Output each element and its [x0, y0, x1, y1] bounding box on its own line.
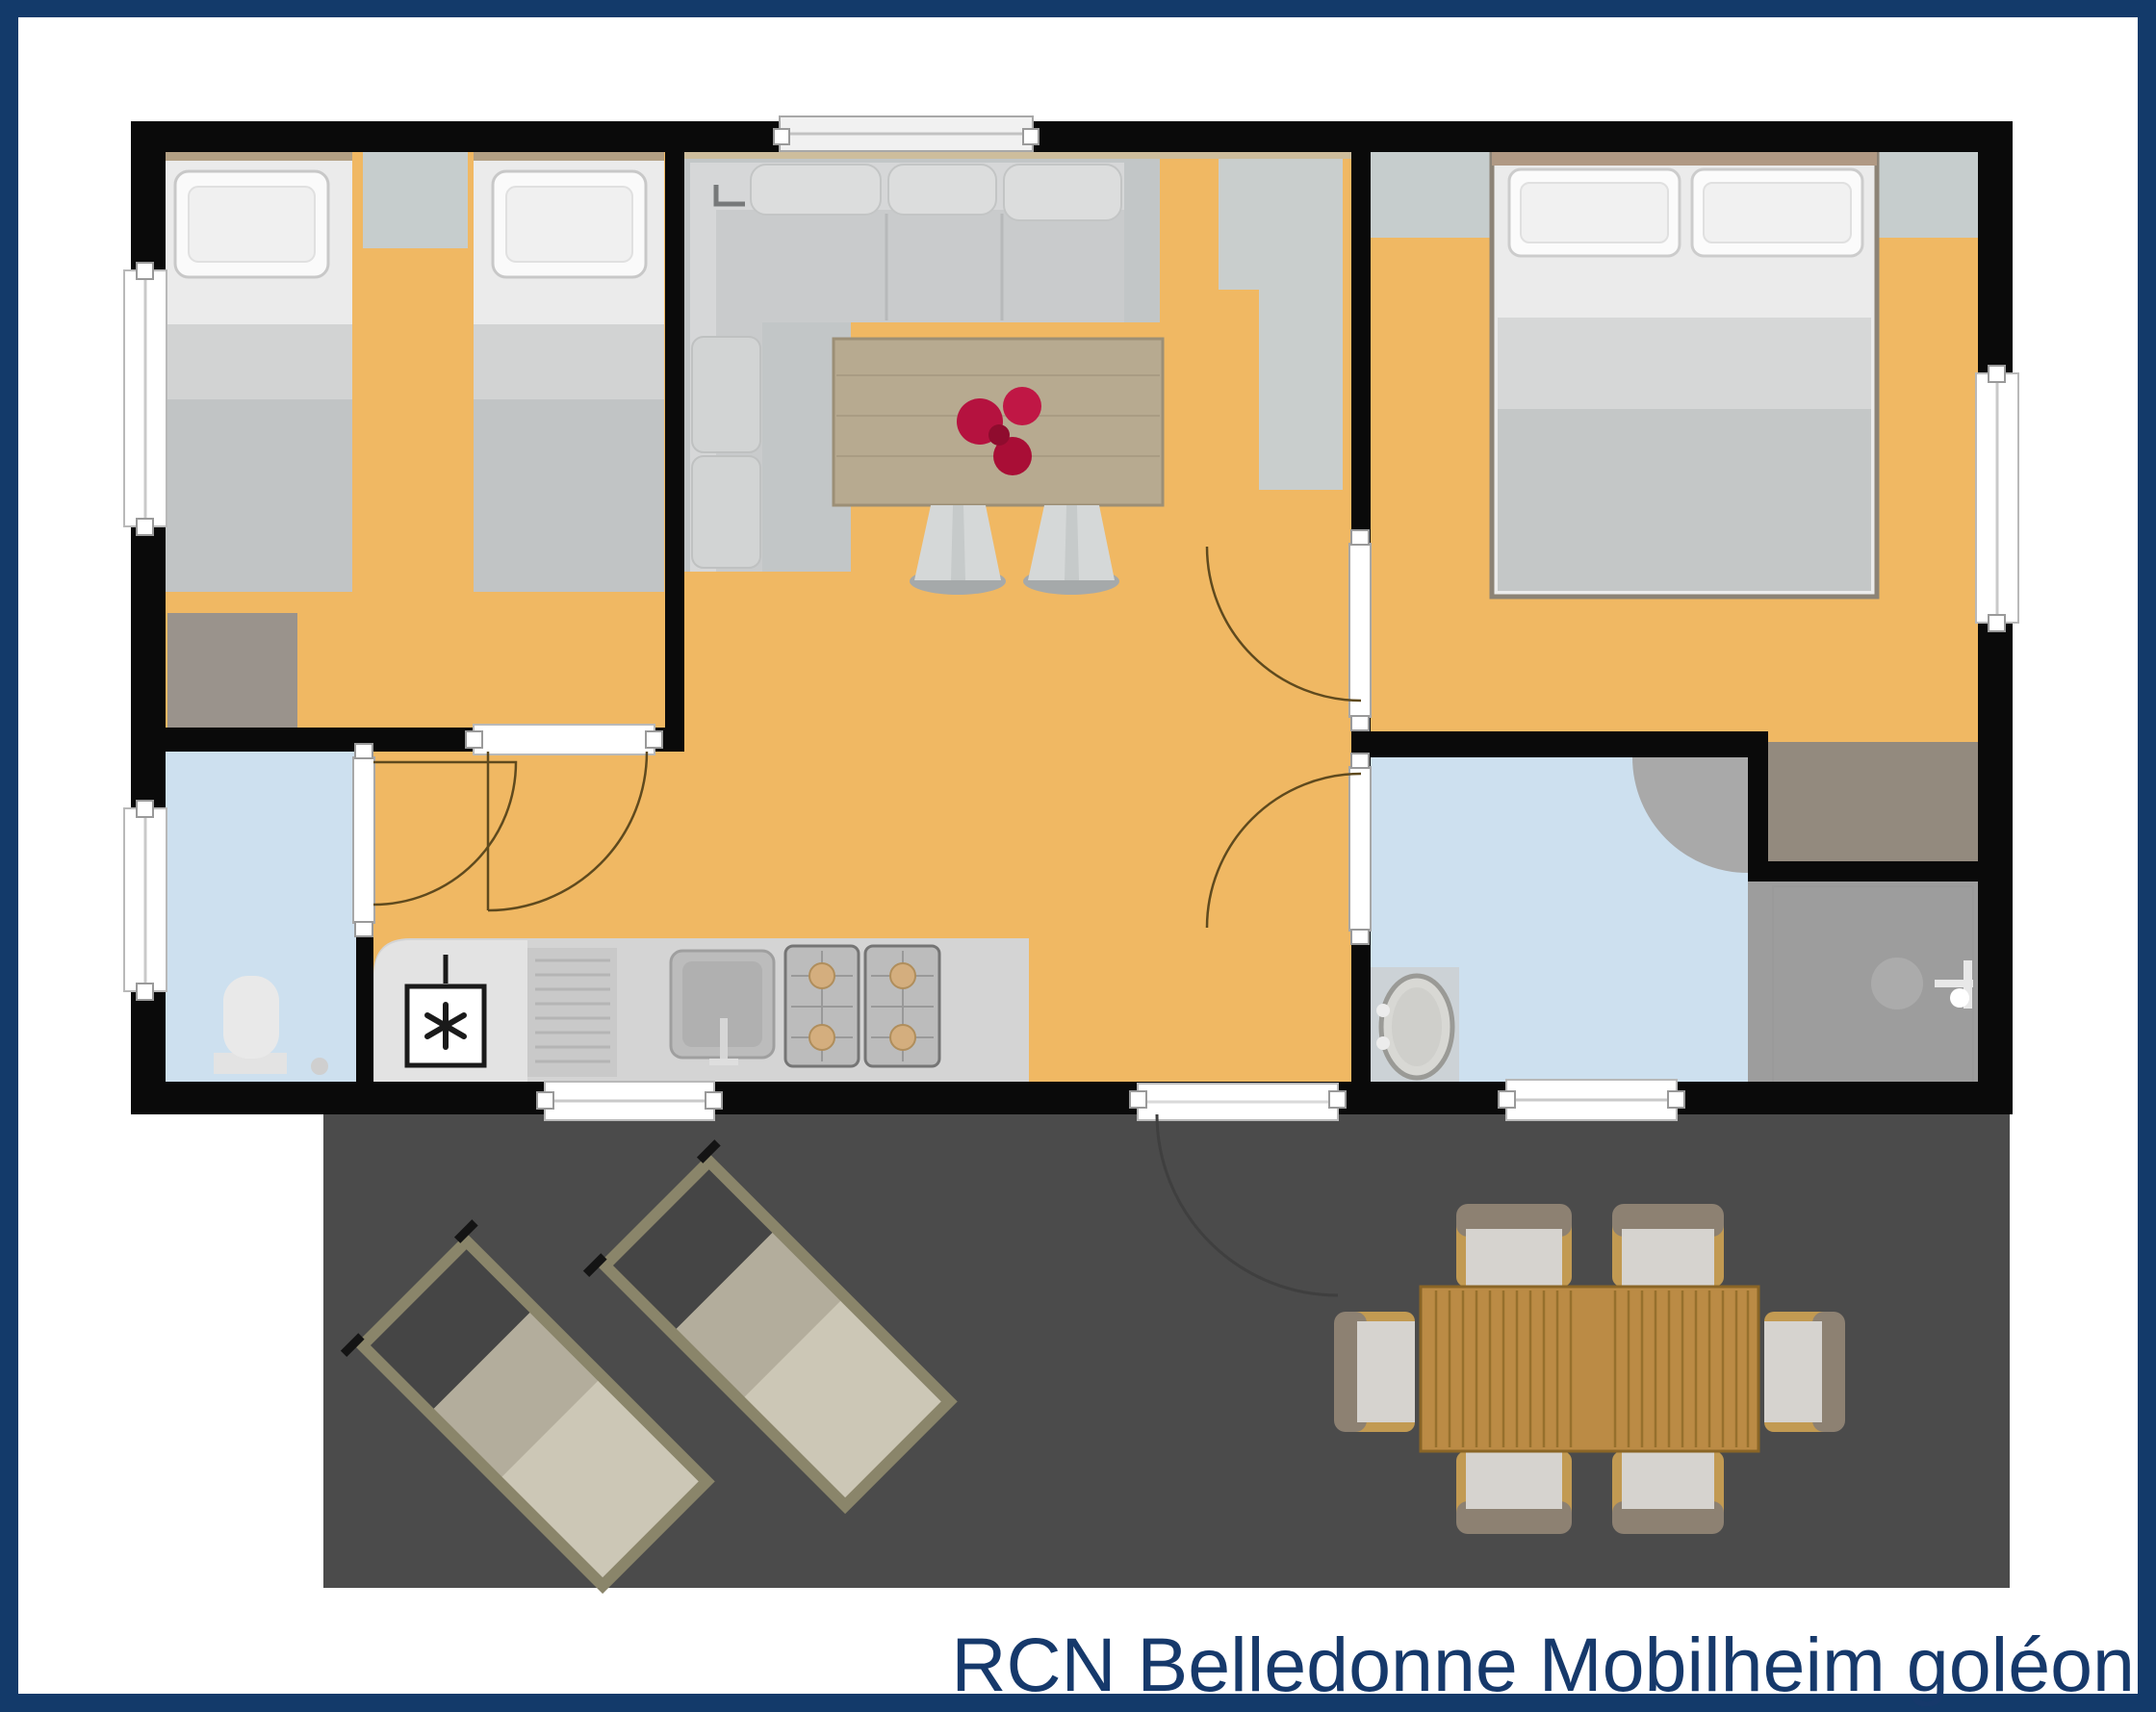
svg-text:RCN Belledonne Mobilheim goléo: RCN Belledonne Mobilheim goléon: [951, 1622, 2135, 1707]
